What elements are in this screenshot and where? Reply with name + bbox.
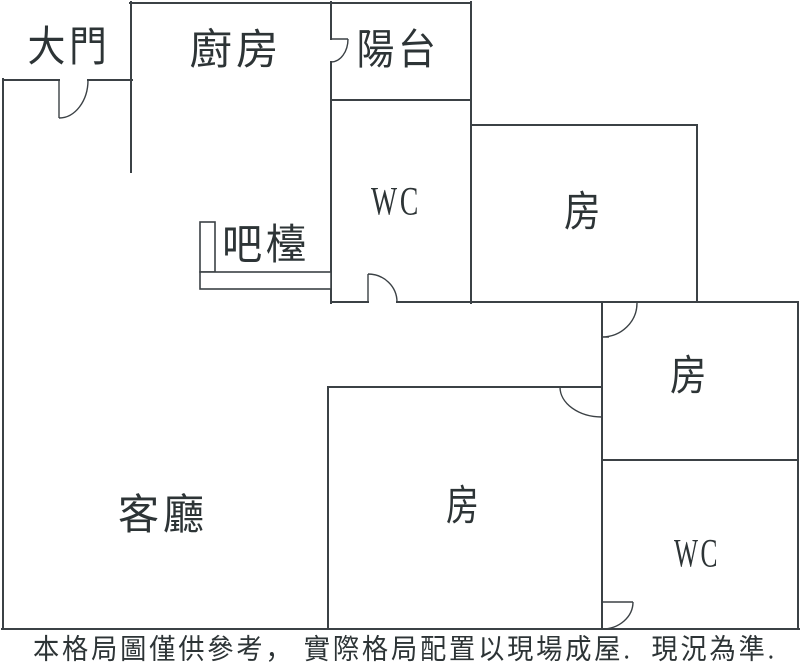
wc-lower-door-swing xyxy=(602,602,633,629)
label-entrance: 大門 xyxy=(28,25,111,71)
balcony-door-swing xyxy=(331,39,348,62)
floor-plan-diagram: 大門 廚房 陽台 WC 房 吧檯 房 客廳 房 WC 本格局圖僅供參考， 實際格… xyxy=(0,0,800,666)
label-bar-counter: 吧檯 xyxy=(222,223,310,269)
entrance-door-swing xyxy=(59,80,88,118)
wc-upper-door-swing xyxy=(368,274,397,302)
floor-plan-page: 大門 廚房 陽台 WC 房 吧檯 房 客廳 房 WC 本格局圖僅供參考， 實際格… xyxy=(0,0,800,666)
bedroom3-door-swing xyxy=(560,387,602,417)
label-bedroom-bottom-middle: 房 xyxy=(446,484,482,530)
bar-counter-top xyxy=(200,272,331,289)
label-kitchen: 廚房 xyxy=(190,27,283,74)
label-bedroom-upper-right: 房 xyxy=(564,190,604,236)
label-living-room: 客廳 xyxy=(118,492,208,539)
label-bedroom-middle-right: 房 xyxy=(670,354,710,400)
label-wc-lower: WC xyxy=(674,531,720,576)
doors xyxy=(59,39,637,629)
disclaimer-caption: 本格局圖僅供參考， 實際格局配置以現場成屋. 現況為準. xyxy=(33,634,777,666)
label-wc-upper: WC xyxy=(371,179,421,224)
bar-counter-end-panel xyxy=(200,222,215,272)
bedroom2-door-swing xyxy=(602,303,637,337)
label-balcony: 陽台 xyxy=(357,28,440,74)
